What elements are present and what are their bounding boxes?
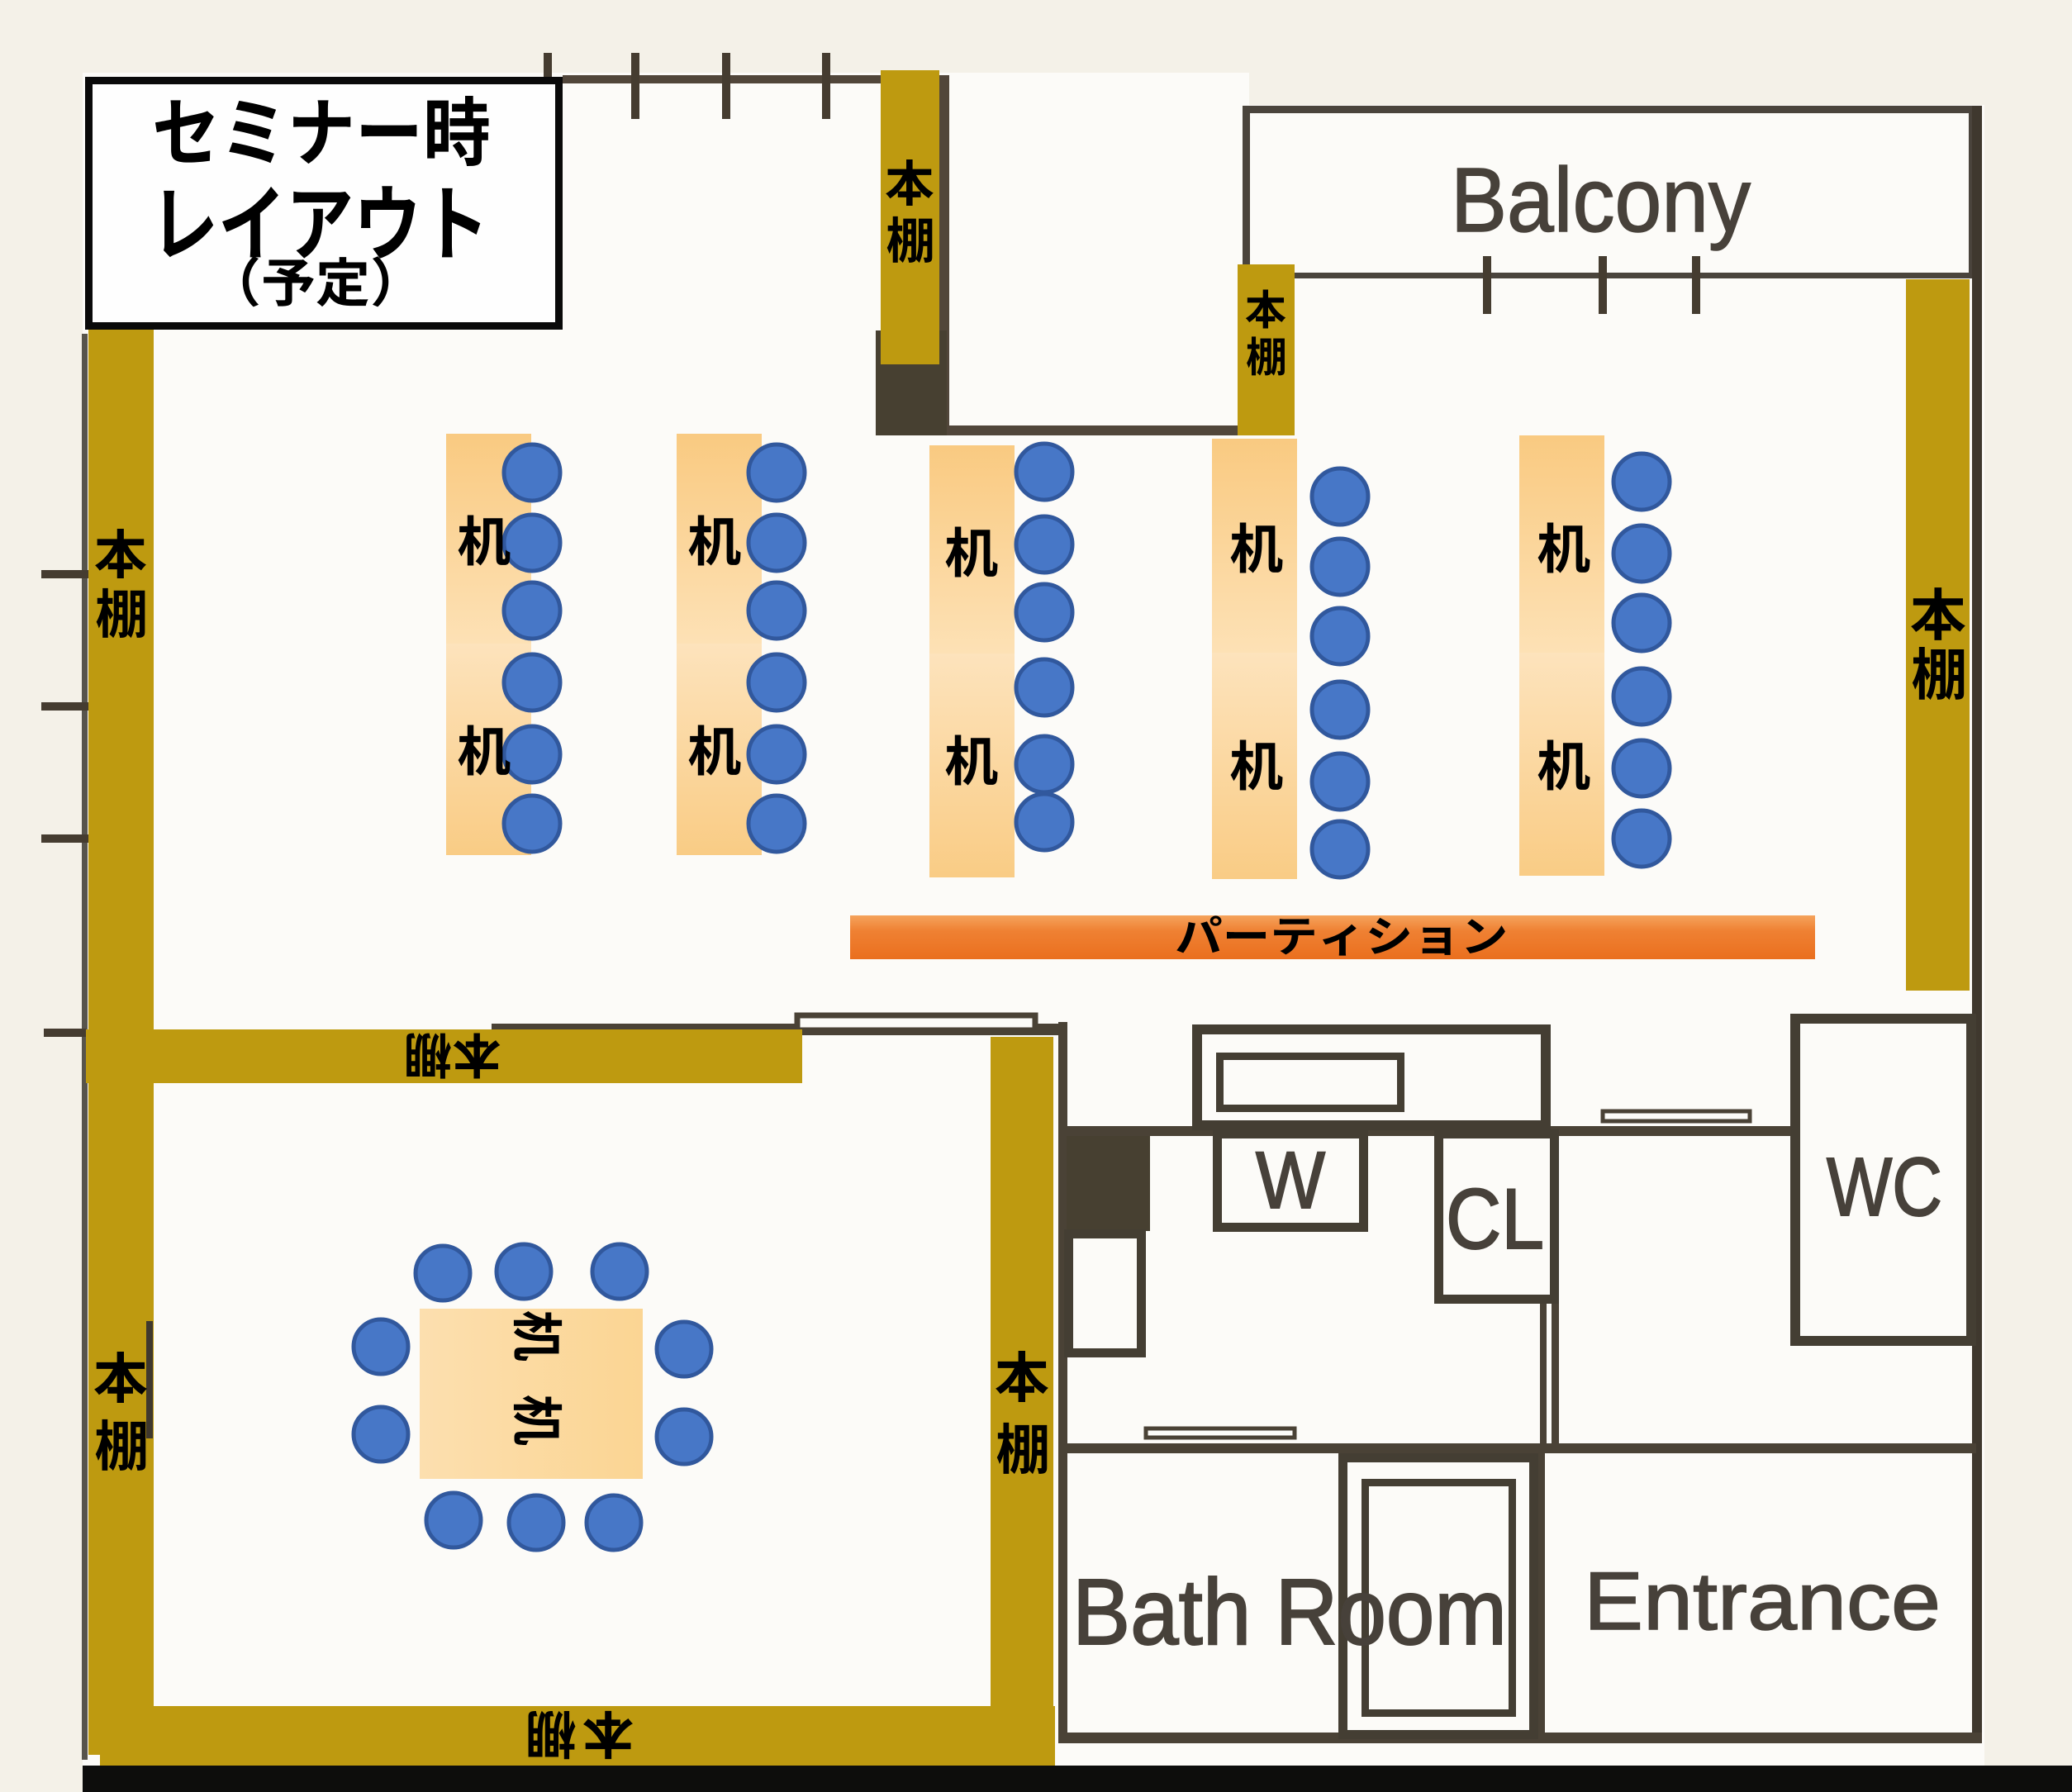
svg-text:W: W xyxy=(1256,1135,1325,1225)
svg-text:CL: CL xyxy=(1446,1172,1544,1267)
svg-text:WC: WC xyxy=(1827,1141,1942,1233)
svg-text:Balcony: Balcony xyxy=(1451,150,1751,251)
svg-text:Bath Room: Bath Room xyxy=(1072,1560,1507,1664)
svg-text:Entrance: Entrance xyxy=(1584,1555,1941,1647)
